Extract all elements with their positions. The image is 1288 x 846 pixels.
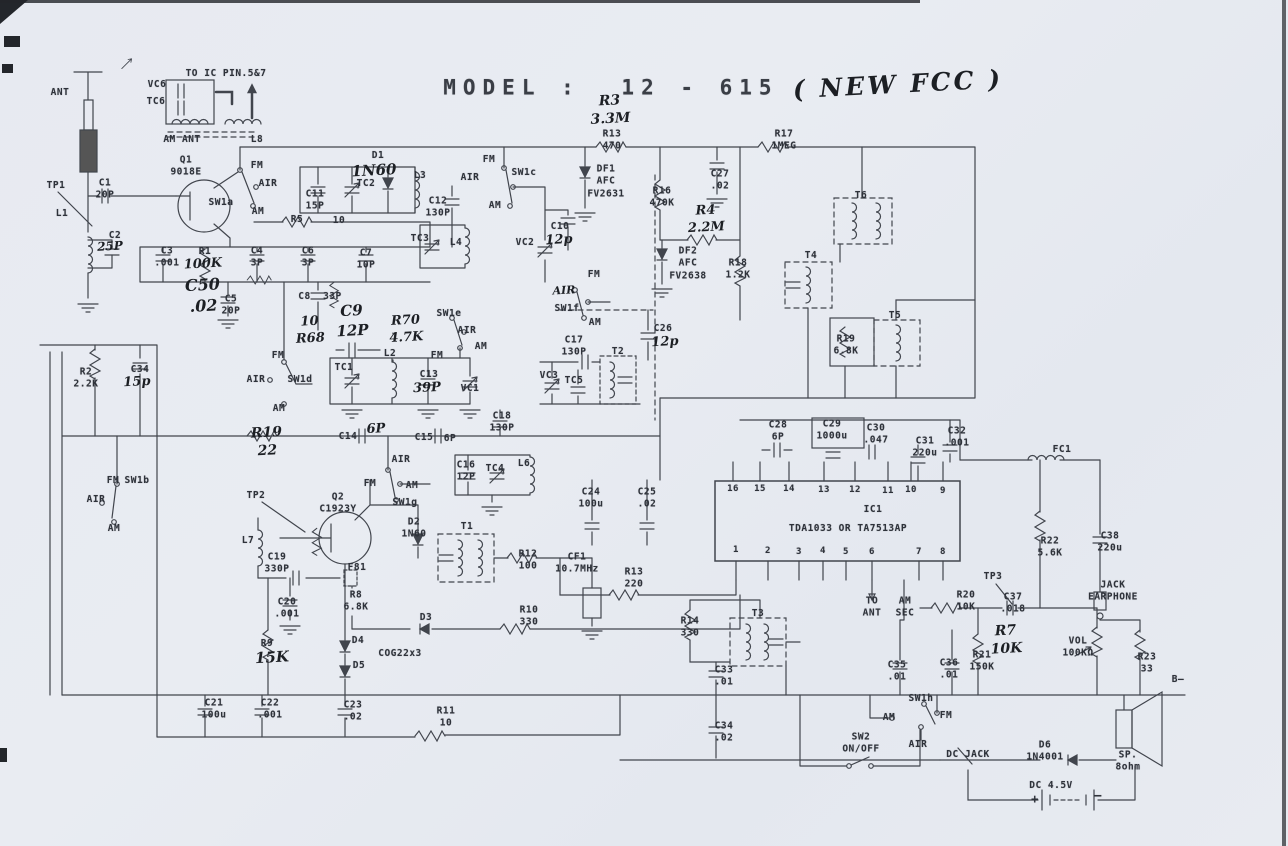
label-r18: R18 1.2K bbox=[726, 258, 751, 283]
label-ic1-part: TDA1033 OR TA7513AP bbox=[789, 523, 907, 535]
label-sw1b-air: AIR bbox=[87, 494, 106, 506]
label-c34b: C34 .02 bbox=[715, 721, 734, 746]
label-c18: C18 130P bbox=[490, 411, 515, 436]
label-b-minus: B– bbox=[1172, 674, 1184, 686]
label-r1-val: 100K bbox=[183, 256, 222, 275]
label-c31: C31 220u bbox=[913, 436, 938, 461]
label-bat-plus: + bbox=[1031, 792, 1039, 808]
label-t3: T3 bbox=[752, 608, 764, 620]
label-r9-val: 15K bbox=[255, 647, 290, 668]
label-tc4: TC4 bbox=[486, 463, 505, 475]
label-sw1g-fm: FM bbox=[364, 478, 376, 490]
label-r3: R3 3.3M bbox=[589, 91, 631, 129]
label-d5: D5 bbox=[353, 660, 365, 672]
label-vc6: VC6 bbox=[148, 79, 167, 91]
label-tc3: TC3 bbox=[411, 233, 430, 245]
label-title-number: 12 - 615 bbox=[621, 74, 778, 101]
label-pin-3: 3 bbox=[796, 547, 802, 559]
label-c1: C1 20P bbox=[96, 178, 115, 203]
label-sw1a: SW1a bbox=[209, 197, 234, 209]
label-c15-val: 6P bbox=[444, 433, 456, 445]
label-sw1a-am: AM bbox=[252, 206, 264, 218]
label-c25: C25 .02 bbox=[638, 487, 657, 512]
label-sw1d-air: AIR bbox=[247, 374, 266, 386]
label-sw1f-fm: FM bbox=[588, 269, 600, 281]
label-c11: C11 15P bbox=[306, 189, 325, 214]
label-tp2: TP2 bbox=[247, 490, 266, 502]
scan-artifacts bbox=[0, 0, 1286, 846]
label-r14: R14 330 bbox=[681, 616, 700, 641]
label-pin-10: 10 bbox=[905, 485, 917, 497]
label-sw1h-am: AM bbox=[883, 712, 895, 724]
label-pin-12: 12 bbox=[849, 485, 861, 497]
label-l6: L6 bbox=[518, 458, 530, 470]
label-r8: R8 6.8K bbox=[344, 590, 369, 615]
label-sw1h: SW1h bbox=[909, 693, 934, 705]
label-sw1f-am: AM bbox=[589, 317, 601, 329]
label-sw1a-fm: FM bbox=[251, 160, 263, 172]
label-c19: C19 330P bbox=[265, 552, 290, 577]
label-c9: C9 12P bbox=[335, 301, 369, 342]
schematic-artwork bbox=[0, 0, 1288, 846]
label-t1: T1 bbox=[461, 521, 473, 533]
label-sw1d-fm: FM bbox=[272, 350, 284, 362]
label-tp3: TP3 bbox=[984, 571, 1003, 583]
label-sw1e-am: AM bbox=[475, 341, 487, 353]
label-c7: C7 10P bbox=[357, 248, 376, 273]
label-c32: C32 .001 bbox=[945, 426, 970, 451]
label-sw1e-fm: FM bbox=[431, 350, 443, 362]
label-c17: C17 130P bbox=[562, 335, 587, 360]
label-dc-45v: DC 4.5V bbox=[1029, 780, 1073, 792]
label-c29: C29 1000u bbox=[816, 419, 847, 444]
label-c12: C12 130P bbox=[426, 196, 451, 221]
label-r68: 10 R68 bbox=[295, 313, 326, 348]
label-c6: C6 3P bbox=[302, 246, 314, 271]
label-c50: C50 .02 bbox=[184, 274, 221, 317]
label-pin-5: 5 bbox=[843, 547, 849, 559]
label-t6: T6 bbox=[855, 190, 867, 202]
label-am-sec: AM SEC bbox=[896, 596, 915, 621]
label-tc6: TC6 bbox=[147, 96, 166, 108]
label-vc3: VC3 bbox=[540, 370, 559, 382]
label-pin-4: 4 bbox=[820, 546, 826, 558]
label-sp: SP. 8ohm bbox=[1116, 750, 1141, 775]
label-vc1: VC1 bbox=[461, 383, 480, 395]
label-tp1: TP1 bbox=[47, 180, 66, 192]
label-c33: C33 .01 bbox=[715, 665, 734, 690]
label-r10: R10 330 bbox=[520, 605, 539, 630]
label-pin-6: 6 bbox=[869, 547, 875, 559]
label-c27: C27 .02 bbox=[711, 169, 730, 194]
label-tc5: TC5 bbox=[565, 375, 584, 387]
label-r70: R70 4.7K bbox=[388, 312, 424, 348]
label-pin-2: 2 bbox=[765, 546, 771, 558]
label-r20: R20 10K bbox=[957, 590, 976, 615]
label-c36: C36 .01 bbox=[940, 658, 959, 683]
label-c30: C30 .047 bbox=[864, 423, 889, 448]
label-c35: C35 .01 bbox=[888, 660, 907, 685]
label-dc-jack: DC JACK bbox=[946, 749, 990, 761]
label-sw1d-am: AM bbox=[273, 403, 285, 415]
ic1-block bbox=[715, 462, 960, 580]
label-pin-11: 11 bbox=[882, 486, 894, 498]
label-c13-val: 39P bbox=[413, 380, 442, 398]
label-t5: T5 bbox=[889, 310, 901, 322]
label-am-ant: AM ANT bbox=[163, 134, 200, 146]
label-pin-14: 14 bbox=[783, 484, 795, 496]
label-c3: C3 .001 bbox=[155, 246, 180, 271]
label-ic1: IC1 bbox=[864, 504, 883, 516]
label-r16: R16 470K bbox=[650, 186, 675, 211]
label-c37: C37 .018 bbox=[1001, 592, 1026, 617]
label-d2: D2 1N60 bbox=[402, 517, 427, 542]
label-pin-1: 1 bbox=[733, 545, 739, 557]
ground-rails bbox=[62, 695, 1185, 846]
label-title-model: MODEL : bbox=[443, 74, 581, 101]
label-sw1f: SW1f bbox=[555, 303, 580, 315]
label-sw1c-am: AM bbox=[489, 200, 501, 212]
label-r7: R7 10K bbox=[989, 621, 1023, 659]
label-r17: R17 1MEG bbox=[772, 129, 797, 154]
label-l3: L3 bbox=[414, 170, 426, 182]
label-sw1b-am: AM bbox=[108, 523, 120, 535]
label-c38: C38 220u bbox=[1098, 531, 1123, 556]
label-r11: R11 10 bbox=[437, 706, 456, 731]
label-t4: T4 bbox=[805, 250, 817, 262]
label-c16: C16 12P bbox=[457, 460, 476, 485]
label-c26-val: 12p bbox=[651, 334, 679, 352]
label-c10-val: 12p bbox=[545, 232, 573, 250]
label-c22: C22 .001 bbox=[258, 698, 283, 723]
label-cog: COG22x3 bbox=[378, 648, 422, 660]
label-d4: D4 bbox=[352, 635, 364, 647]
label-c15: C15 bbox=[415, 432, 434, 444]
label-fc1: FC1 bbox=[1053, 444, 1072, 456]
label-r23: R23 33 bbox=[1138, 652, 1157, 677]
label-sw1g: SW1g bbox=[393, 497, 418, 509]
label-c20: C20 .001 bbox=[275, 597, 300, 622]
if-transformers bbox=[785, 147, 975, 398]
label-d6: D6 1N4001 bbox=[1026, 740, 1063, 765]
label-c23: C23 .02 bbox=[344, 700, 363, 725]
label-to-ic-pin: TO IC PIN.5&7 bbox=[186, 68, 267, 80]
label-l2: L2 bbox=[384, 348, 396, 360]
label-r5: R5 bbox=[291, 214, 303, 226]
label-q1: Q1 9018E bbox=[170, 155, 201, 180]
label-c34a-val: 15p bbox=[123, 374, 151, 392]
label-f81: F81 bbox=[348, 562, 367, 574]
label-df2: DF2 AFC FV2638 bbox=[669, 245, 706, 282]
label-vol: VOL 100KΩ bbox=[1062, 636, 1093, 661]
label-d3: D3 bbox=[420, 612, 432, 624]
label-jack: JACK EARPHONE bbox=[1088, 580, 1138, 605]
label-r13a: R13 470 bbox=[603, 129, 622, 154]
label-ant: ANT bbox=[51, 87, 70, 99]
label-r4: R4 2.2M bbox=[687, 202, 726, 238]
label-to-ant: TO ANT bbox=[863, 596, 882, 621]
left-rails bbox=[40, 345, 157, 695]
label-r12: R12 100 bbox=[519, 549, 538, 574]
label-c28: C28 6P bbox=[769, 420, 788, 445]
label-sw1c-air: AIR bbox=[461, 172, 480, 184]
label-c14: C14 bbox=[339, 431, 358, 443]
label-c14-val: 6P bbox=[366, 421, 386, 439]
label-c24: C24 100u bbox=[579, 487, 604, 512]
label-c5: C5 20P bbox=[222, 294, 241, 319]
label-t2: T2 bbox=[612, 346, 624, 358]
label-c4: C4 3P bbox=[251, 246, 263, 271]
schematic-page: MODEL :12 - 615( NEW FCC )ANTVC6TC6TO IC… bbox=[0, 0, 1288, 846]
label-c2-val: 25P bbox=[97, 239, 124, 256]
label-c21: C21 100u bbox=[202, 698, 227, 723]
label-pin-13: 13 bbox=[818, 485, 830, 497]
label-sw1e: SW1e bbox=[437, 308, 462, 320]
label-r2: R2 2.2K bbox=[74, 367, 99, 392]
label-l7: L7 bbox=[242, 535, 254, 547]
label-tc1: TC1 bbox=[335, 362, 354, 374]
label-sw1f-air: AIR bbox=[552, 283, 576, 298]
label-r13b: R13 220 bbox=[625, 567, 644, 592]
am-osc-section bbox=[247, 276, 480, 418]
label-l4: L4 bbox=[450, 237, 462, 249]
label-pin-9: 9 bbox=[940, 486, 946, 498]
label-sw1b: SW1b bbox=[125, 475, 150, 487]
label-l1: L1 bbox=[56, 208, 68, 220]
label-vc2: VC2 bbox=[516, 237, 535, 249]
label-r5-val: 10 bbox=[333, 215, 345, 227]
label-sw1c: SW1c bbox=[512, 167, 537, 179]
label-sw1b-fm: FM bbox=[107, 475, 119, 487]
label-l8: L8 bbox=[251, 134, 263, 146]
label-sw1d: SW1d bbox=[288, 374, 313, 386]
label-sw1g-air: AIR bbox=[392, 454, 411, 466]
label-r19a: R19 22 bbox=[251, 423, 284, 461]
label-pin-15: 15 bbox=[754, 484, 766, 496]
if-filter-row bbox=[340, 505, 740, 695]
label-sw1g-am: AM bbox=[406, 480, 418, 492]
label-df1: DF1 AFC FV2631 bbox=[587, 163, 624, 200]
label-tc2: TC2 bbox=[357, 178, 376, 190]
label-r19b: R19 6.8K bbox=[834, 334, 859, 359]
label-sw2: SW2 ON/OFF bbox=[842, 732, 879, 757]
label-sw1h-air: AIR bbox=[909, 739, 928, 751]
label-q2: Q2 C1923Y bbox=[319, 492, 356, 517]
label-sw1a-air: AIR bbox=[259, 178, 278, 190]
label-pin-16: 16 bbox=[727, 484, 739, 496]
label-pin-8: 8 bbox=[940, 547, 946, 559]
label-bat-minus: – bbox=[1094, 788, 1102, 804]
label-pin-7: 7 bbox=[916, 547, 922, 559]
label-sw1h-fm: FM bbox=[940, 710, 952, 722]
label-sw1e-air: AIR bbox=[458, 325, 477, 337]
mid-bus bbox=[62, 410, 660, 443]
label-cf1: CF1 10.7MHz bbox=[555, 552, 599, 577]
label-r22: R22 5.6K bbox=[1038, 536, 1063, 561]
label-sw1c-fm: FM bbox=[483, 154, 495, 166]
